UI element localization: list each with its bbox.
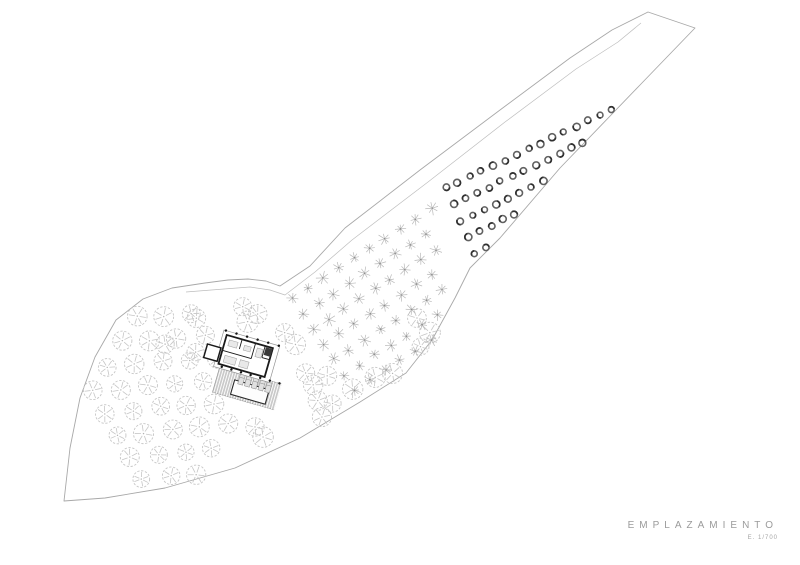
band-tree-symbol (482, 207, 488, 213)
orchard-tree-symbol (399, 264, 410, 276)
orchard-tree-symbol (402, 332, 411, 341)
olive-tree-symbol (253, 427, 274, 448)
band-tree-symbol (536, 139, 546, 149)
olive-tree-symbol (365, 367, 385, 387)
olive-tree-symbol (285, 334, 305, 354)
orchard-tree-symbol (350, 252, 359, 262)
tree-fields (83, 106, 615, 488)
olive-tree-symbol (166, 329, 185, 348)
band-tree-symbol (560, 129, 566, 135)
orchard-tree-symbol (375, 258, 387, 268)
band-tree-symbol (556, 150, 564, 158)
orchard-tree-symbol (395, 355, 405, 365)
band-tree-symbol (544, 155, 553, 164)
orchard-tree-symbol (349, 318, 359, 329)
orchard-tree-symbol (353, 293, 364, 303)
orchard-tree-symbol (427, 269, 438, 279)
olive-tree-symbol (98, 359, 116, 377)
orchard-tree-symbol (333, 327, 344, 339)
site-plan-drawing (0, 0, 800, 565)
orchard-tree-symbol (307, 324, 320, 335)
band-tree-symbol (443, 184, 450, 191)
band-tree-symbol (607, 106, 615, 114)
band-tree-symbol (452, 178, 462, 188)
vineyard-band (443, 106, 615, 258)
orchard-tree-symbol (317, 339, 328, 351)
band-tree-symbol (463, 232, 473, 242)
orchard-tree-symbol (425, 202, 438, 215)
band-tree-symbol (519, 167, 527, 175)
band-tree-symbol (597, 112, 604, 119)
olive-tree-symbol (204, 394, 224, 414)
band-tree-symbol (498, 214, 508, 224)
olive-tree-symbol (202, 439, 219, 456)
olive-grove-west (83, 305, 237, 488)
band-tree-symbol (482, 243, 491, 252)
orchard-tree-symbol (385, 274, 395, 285)
orchard-tree-symbol (370, 282, 381, 294)
band-tree-symbol (496, 177, 503, 184)
band-tree-symbol (477, 167, 485, 175)
band-tree-symbol (469, 211, 477, 219)
olive-tree-symbol (95, 405, 114, 424)
band-tree-symbol (450, 200, 459, 209)
orchard-tree-symbol (410, 346, 421, 356)
orchard-tree-symbol (396, 290, 407, 301)
band-tree-symbol (526, 145, 533, 152)
site-plan-sheet: EMPLAZAMIENTO E. 1/700 (0, 0, 800, 565)
orchard-tree-symbol (405, 240, 415, 250)
olive-tree-symbol (194, 373, 211, 390)
band-tree-symbol (470, 250, 478, 258)
olive-tree-symbol (248, 305, 267, 324)
orchard-tree-symbol (343, 344, 354, 356)
band-tree-symbol (473, 189, 481, 197)
orchard-grid (286, 202, 447, 396)
olive-tree-symbol (152, 397, 170, 415)
olive-tree-symbol (178, 444, 194, 460)
orchard-tree-symbol (327, 289, 339, 301)
building-group (195, 326, 292, 410)
orchard-tree-symbol (365, 308, 376, 319)
site-boundary (64, 12, 695, 501)
orchard-tree-symbol (364, 244, 375, 254)
building-floorplan (195, 326, 292, 410)
olive-tree-symbol (187, 309, 206, 328)
band-tree-symbol (461, 194, 469, 202)
orchard-tree-symbol (415, 253, 427, 265)
olive-tree-symbol (162, 467, 180, 485)
band-tree-symbol (515, 188, 524, 197)
olive-tree-symbol (150, 446, 167, 463)
olive-tree-symbol (234, 298, 252, 316)
orchard-tree-symbol (379, 300, 389, 312)
band-tree-symbol (572, 123, 581, 132)
title-block: EMPLAZAMIENTO E. 1/700 (628, 520, 778, 541)
orchard-tree-symbol (432, 310, 444, 321)
band-tree-symbol (492, 200, 500, 208)
olive-tree-symbol (133, 424, 153, 444)
band-tree-symbol (503, 194, 512, 203)
orchard-tree-symbol (358, 335, 371, 347)
band-tree-symbol (457, 218, 464, 225)
orchard-tree-symbol (358, 267, 370, 280)
orchard-tree-symbol (356, 361, 365, 371)
olive-tree-symbol (189, 417, 209, 437)
orchard-tree-symbol (323, 313, 336, 326)
band-tree-symbol (486, 185, 493, 192)
band-tree-symbol (476, 227, 483, 234)
orchard-tree-symbol (286, 293, 298, 303)
band-tree-symbol (501, 157, 510, 166)
band-tree-symbol (488, 161, 497, 170)
orchard-tree-symbol (421, 230, 431, 239)
olive-tree-symbol (109, 427, 126, 444)
orchard-tree-symbol (390, 249, 402, 260)
scale-label: E. 1/700 (628, 535, 778, 541)
band-tree-symbol (539, 176, 549, 186)
olive-tree-symbol (276, 324, 294, 342)
orchard-tree-symbol (422, 295, 432, 306)
olive-tree-symbol (324, 395, 341, 412)
olive-tree-symbol (196, 326, 214, 344)
orchard-tree-symbol (411, 279, 422, 290)
olive-tree-symbol (154, 307, 174, 327)
olive-tree-symbol (167, 376, 183, 392)
olive-tree-symbol (163, 420, 182, 439)
orchard-tree-symbol (345, 277, 356, 290)
band-tree-symbol (513, 150, 522, 159)
orchard-tree-symbol (436, 284, 447, 295)
annex-outline (204, 344, 221, 361)
olive-tree-symbol (111, 380, 130, 399)
olive-tree-symbol (133, 471, 150, 488)
olive-tree-symbol (113, 331, 132, 350)
orchard-tree-symbol (369, 350, 380, 359)
orchard-tree-symbol (333, 262, 344, 273)
olive-tree-symbol (120, 448, 139, 467)
orchard-tree-symbol (411, 214, 422, 225)
olive-tree-symbol (318, 366, 337, 385)
band-tree-symbol (488, 222, 496, 230)
orchard-tree-symbol (299, 309, 310, 320)
olive-tree-symbol (177, 396, 195, 414)
band-tree-symbol (578, 138, 588, 148)
band-tree-symbol (567, 143, 575, 151)
olive-tree-symbol (138, 376, 157, 395)
orchard-tree-symbol (314, 298, 325, 310)
olive-tree-symbol (124, 354, 143, 373)
band-tree-symbol (548, 133, 556, 141)
perimeter-path (186, 23, 641, 295)
band-tree-symbol (509, 172, 518, 181)
olive-tree-symbol (219, 414, 238, 433)
band-tree-symbol (585, 117, 591, 123)
band-tree-symbol (467, 173, 474, 180)
olive-tree-symbol (83, 381, 102, 400)
orchard-tree-symbol (329, 353, 340, 365)
orchard-tree-symbol (395, 224, 406, 234)
orchard-tree-symbol (430, 245, 442, 255)
olive-tree-symbol (154, 352, 172, 370)
orchard-tree-symbol (391, 315, 401, 325)
band-tree-symbol (528, 184, 535, 191)
orchard-tree-symbol (376, 325, 386, 334)
band-tree-symbol (532, 161, 540, 169)
orchard-tree-symbol (337, 303, 348, 315)
orchard-tree-symbol (378, 234, 389, 245)
olive-tree-symbol (125, 403, 142, 420)
orchard-tree-symbol (339, 371, 349, 380)
orchard-tree-symbol (316, 271, 329, 284)
sheet-title: EMPLAZAMIENTO (628, 520, 778, 531)
orchard-tree-symbol (385, 339, 397, 351)
orchard-tree-symbol (304, 283, 313, 293)
